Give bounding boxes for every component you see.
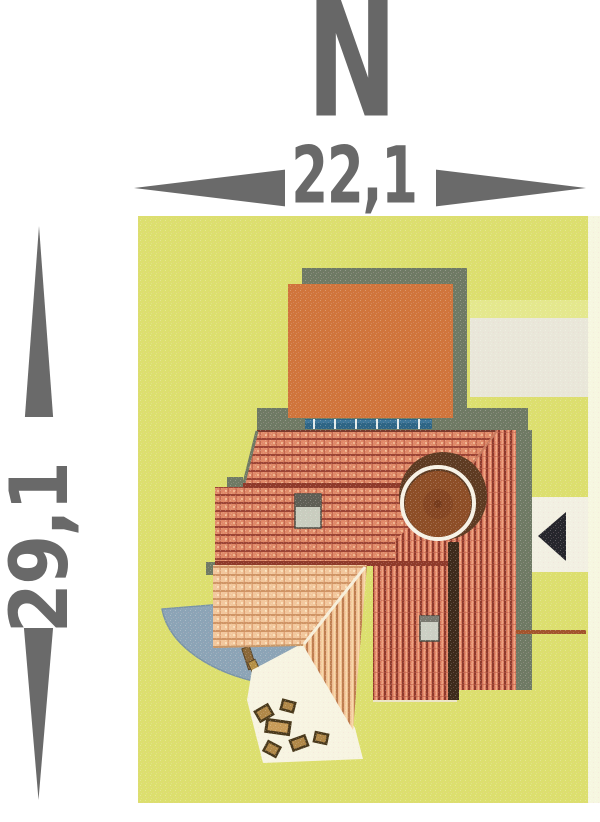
site-plan-drawing bbox=[0, 0, 600, 822]
width-dimension-value: 22,1 bbox=[291, 137, 416, 215]
dither-texture bbox=[138, 216, 600, 803]
depth-dimension-value: 29,1 bbox=[0, 463, 80, 633]
site-plan-canvas: N 22,1 29,1 bbox=[0, 0, 600, 822]
north-label: N bbox=[306, 0, 397, 142]
